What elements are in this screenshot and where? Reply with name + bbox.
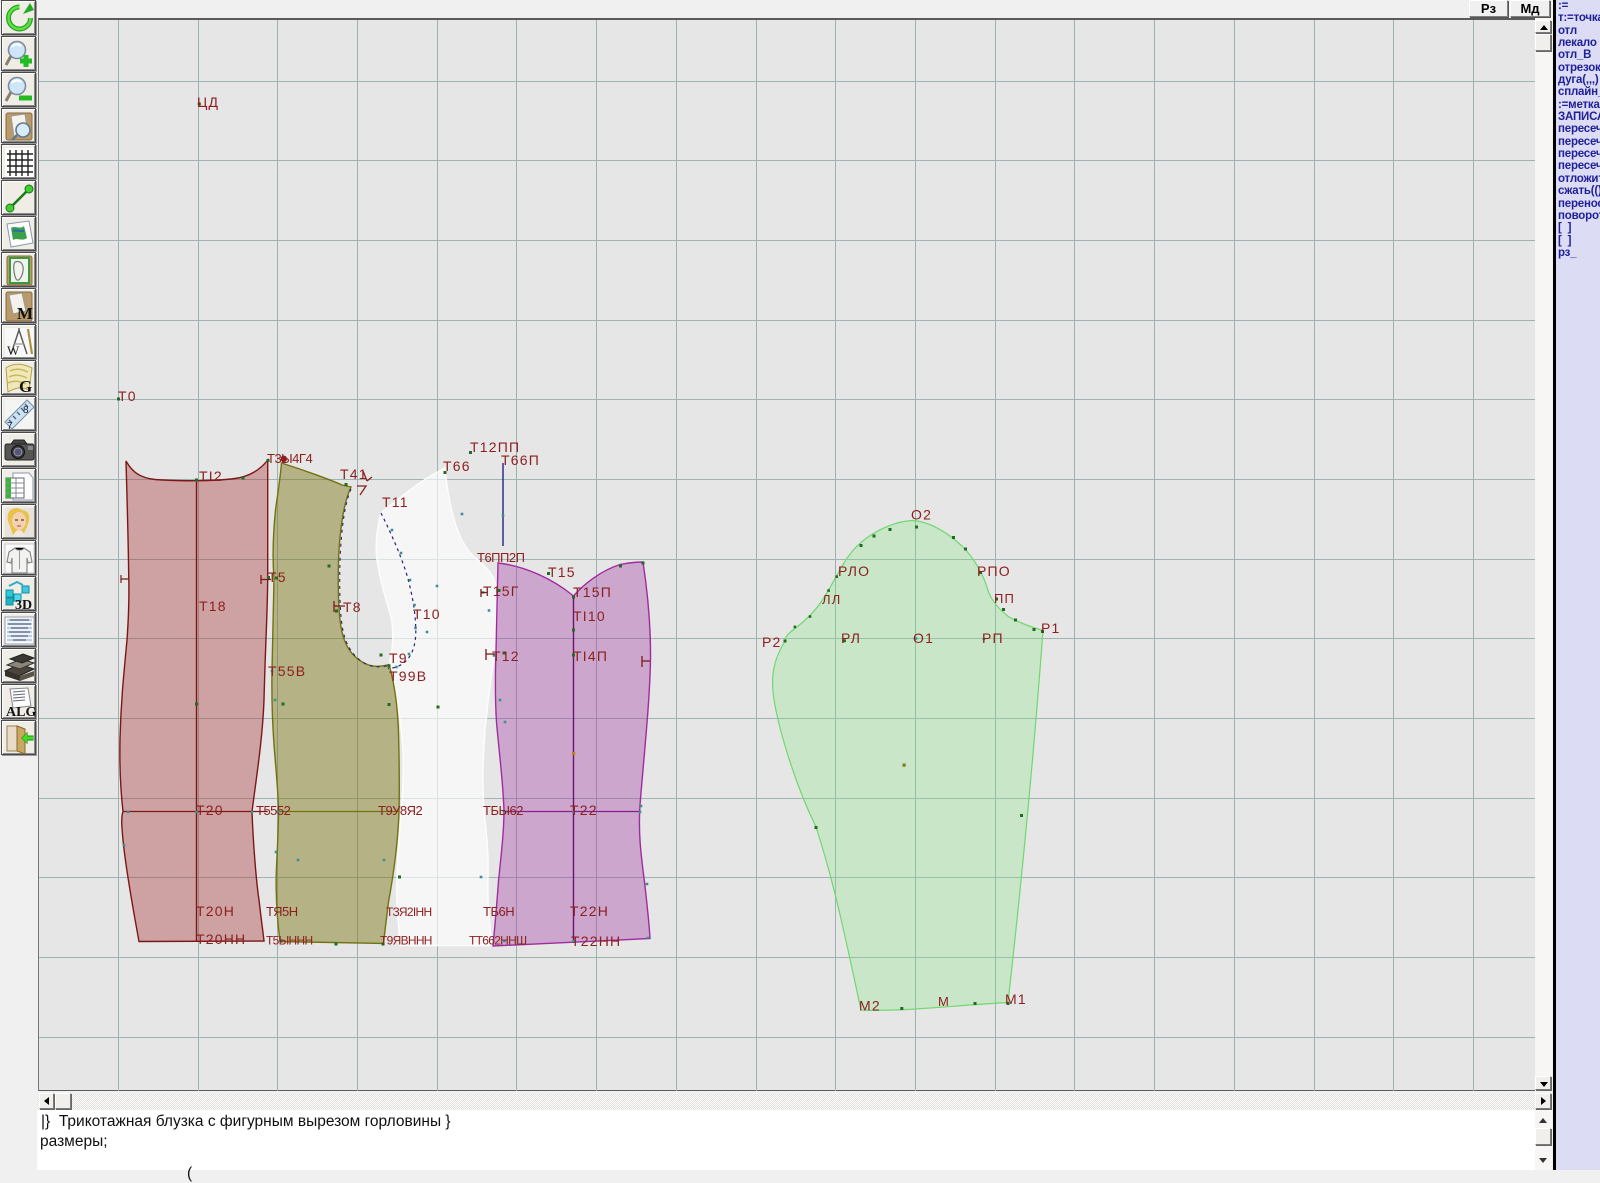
svg-text:Т20: Т20 <box>196 802 224 818</box>
svg-text:Т12: Т12 <box>492 648 520 664</box>
svg-text:Т15Г: Т15Г <box>483 583 520 599</box>
svg-text:Т41: Т41 <box>340 466 368 482</box>
svg-text:РП: РП <box>982 630 1004 646</box>
svg-text:Т9У8Я2: Т9У8Я2 <box>378 803 423 818</box>
svg-text:Т20Н: Т20Н <box>196 903 235 919</box>
svg-text:ТБЫ62: ТБЫ62 <box>483 803 523 818</box>
svg-text:Т66П: Т66П <box>501 452 540 468</box>
svg-text:ТІ10: ТІ10 <box>573 608 606 624</box>
svg-text:Т6ПП2П: Т6ПП2П <box>477 550 525 565</box>
svg-text:ТІ4П: ТІ4П <box>573 648 608 664</box>
svg-text:РЛО: РЛО <box>838 563 870 579</box>
svg-text:M: M <box>17 304 33 323</box>
svg-text:ЛЛ: ЛЛ <box>822 592 841 607</box>
svg-text:Т22НН: Т22НН <box>571 933 621 949</box>
svg-text:Т99В: Т99В <box>389 668 427 684</box>
svg-text:РПО: РПО <box>977 563 1011 579</box>
svg-text:Т0: Т0 <box>118 388 137 404</box>
svg-text:Т10: Т10 <box>413 606 441 622</box>
svg-text:М1: М1 <box>1005 991 1027 1007</box>
svg-text:Т5552: Т5552 <box>256 803 291 818</box>
svg-text:Т20НН: Т20НН <box>196 931 246 947</box>
svg-text:ТТ662ННШ: ТТ662ННШ <box>469 934 527 948</box>
svg-text:Т22Н: Т22Н <box>570 903 609 919</box>
svg-text:Т5ЫННН: Т5ЫННН <box>266 934 312 948</box>
svg-text:ТБ6Н: ТБ6Н <box>483 904 514 919</box>
svg-text:7: 7 <box>7 421 13 431</box>
svg-text:ALG: ALG <box>6 705 36 719</box>
svg-text:М: М <box>938 994 950 1009</box>
svg-text:Т66: Т66 <box>443 458 471 474</box>
svg-text:М2: М2 <box>859 998 881 1014</box>
svg-text:Р1: Р1 <box>1041 620 1061 636</box>
svg-text:ТЯ5Н: ТЯ5Н <box>266 904 298 919</box>
svg-text:Т9ЯВННН: Т9ЯВННН <box>380 934 432 948</box>
svg-text:Т11: Т11 <box>382 494 409 510</box>
svg-text:Т9: Т9 <box>389 650 408 666</box>
svg-text:О2: О2 <box>911 507 932 523</box>
svg-text:Т15П: Т15П <box>573 584 612 600</box>
svg-text:РЛ: РЛ <box>841 630 861 646</box>
svg-text:3D: 3D <box>15 598 32 611</box>
svg-text:ПП: ПП <box>994 591 1015 606</box>
svg-text:G: G <box>19 377 32 395</box>
svg-text:Т22: Т22 <box>570 802 598 818</box>
svg-text:Т18: Т18 <box>199 598 227 614</box>
svg-text:ТІ2: ТІ2 <box>199 468 223 484</box>
svg-text:Т3Ы4Г4: Т3Ы4Г4 <box>267 451 312 466</box>
svg-text:Т15: Т15 <box>548 564 576 580</box>
svg-text:Т8: Т8 <box>343 599 362 615</box>
svg-text:Т5: Т5 <box>268 569 287 585</box>
svg-text:ЦД: ЦД <box>197 94 219 110</box>
svg-text:О1: О1 <box>913 630 934 646</box>
svg-text:ТЗЯ2ІНН: ТЗЯ2ІНН <box>386 905 431 919</box>
svg-text:W: W <box>7 343 20 358</box>
svg-text:Т55В: Т55В <box>268 663 306 679</box>
svg-text:Р2: Р2 <box>762 634 782 650</box>
svg-text:8: 8 <box>23 405 29 416</box>
